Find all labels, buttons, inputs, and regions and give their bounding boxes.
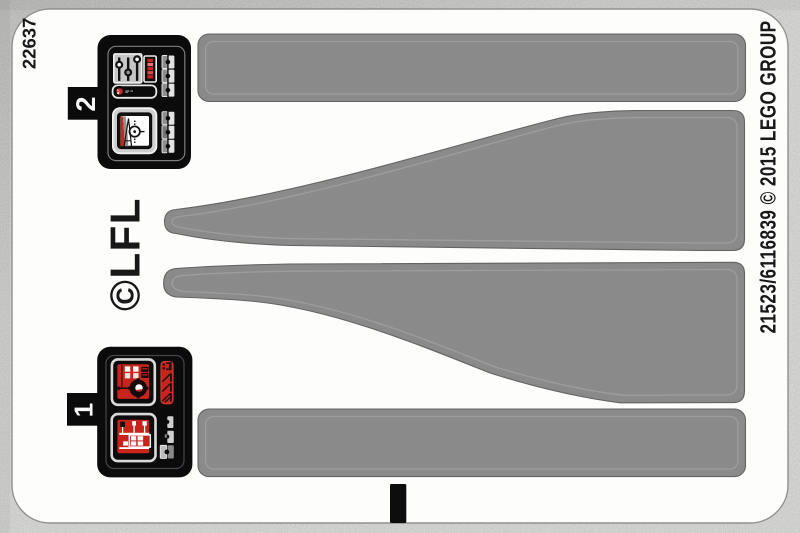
svg-text:©LFL: ©LFL (102, 197, 149, 311)
svg-text:1: 1 (69, 403, 99, 417)
svg-text:22637: 22637 (19, 18, 40, 69)
svg-text:21523/6116839 © 2015 LEGO GROU: 21523/6116839 © 2015 LEGO GROUP (756, 20, 781, 333)
svg-text:2: 2 (71, 96, 101, 111)
